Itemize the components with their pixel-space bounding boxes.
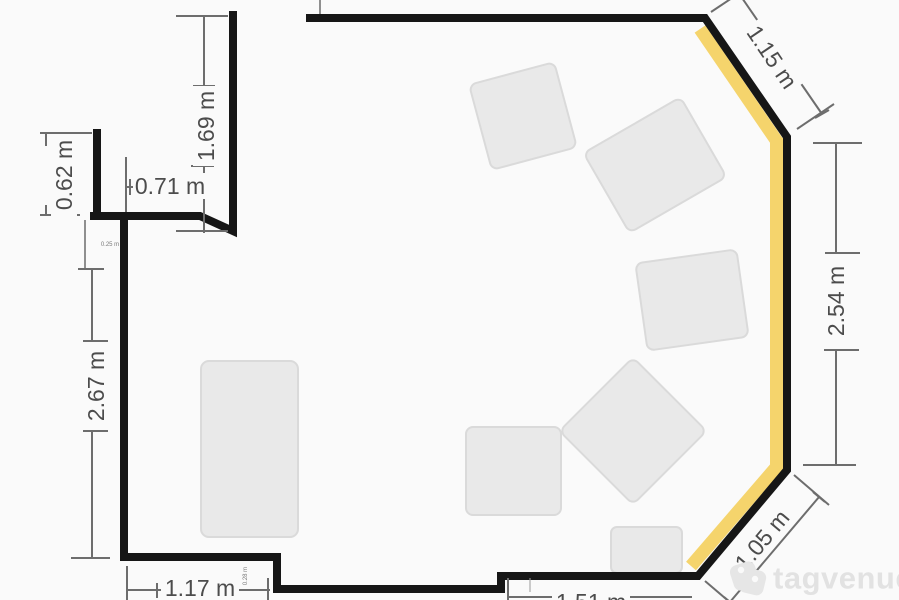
dim-label-bottom-left: 1.17 m: [161, 575, 239, 600]
label-0-62: 0.62 m: [51, 140, 77, 210]
dim-label-small-step: 0.28 m: [243, 567, 249, 585]
label-1-69: 1.69 m: [193, 91, 219, 161]
label-2-54: 2.54 m: [823, 266, 849, 336]
label-2-67: 2.67 m: [83, 351, 109, 421]
label-0-25: 0.25 m: [101, 242, 119, 248]
dim-label-left-wall: 2.67 m: [83, 343, 109, 429]
table-mid-right: [635, 249, 748, 350]
tag-hole-front: [752, 576, 758, 582]
label-1-17: 1.17 m: [165, 575, 235, 600]
table-large-left: [201, 361, 298, 537]
label-0-28: 0.28 m: [243, 567, 249, 585]
floorplan-svg: 1.69 m 0.62 m 0.71 m 2.67 m 1.17 m 1.51 …: [0, 0, 899, 600]
dim-label-left-offset: 0.62 m: [51, 134, 77, 216]
floorplan-canvas: 1.69 m 0.62 m 0.71 m 2.67 m 1.17 m 1.51 …: [0, 0, 899, 600]
table-bottom-partial: [611, 527, 682, 573]
watermark: tagvenue: [728, 560, 899, 597]
table-bottom-center: [466, 427, 561, 515]
tagvenue-watermark-text: tagvenue: [773, 561, 899, 596]
background: [0, 0, 899, 600]
dim-label-right-wall: 2.54 m: [823, 257, 849, 345]
dim-label-bottom-center: 1.51 m: [552, 589, 630, 600]
label-0-71: 0.71 m: [135, 173, 205, 199]
dim-label-small-left: 0.25 m: [101, 242, 119, 248]
dim-label-top-left-height: 1.69 m: [193, 86, 219, 166]
label-1-51: 1.51 m: [556, 589, 626, 600]
dim-label-top-opening: 0.71 m: [133, 173, 207, 199]
tag-hole-back: [738, 567, 744, 573]
